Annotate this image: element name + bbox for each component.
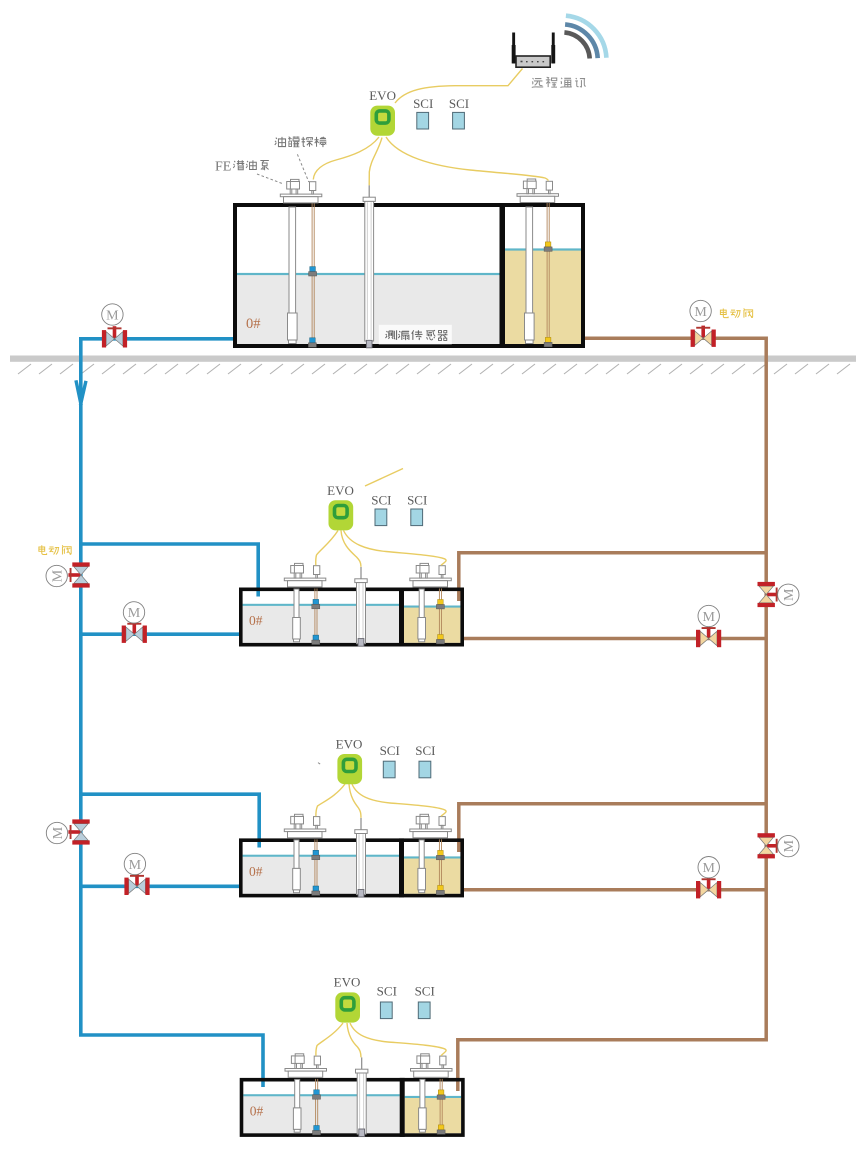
svg-text:SCI: SCI [413, 96, 433, 111]
svg-text:SCI: SCI [371, 493, 391, 508]
svg-text:EVO: EVO [336, 737, 363, 752]
svg-text:FE: FE [215, 159, 231, 174]
svg-text:SCI: SCI [415, 743, 435, 758]
svg-text:EVO: EVO [327, 483, 354, 498]
svg-text:EVO: EVO [369, 88, 396, 103]
svg-text:SCI: SCI [407, 493, 427, 508]
svg-text:SCI: SCI [377, 984, 397, 999]
svg-text:SCI: SCI [449, 96, 469, 111]
svg-text:SCI: SCI [415, 984, 435, 999]
svg-text:0#: 0# [246, 316, 261, 332]
svg-text:SCI: SCI [380, 743, 400, 758]
svg-text:EVO: EVO [334, 975, 361, 990]
